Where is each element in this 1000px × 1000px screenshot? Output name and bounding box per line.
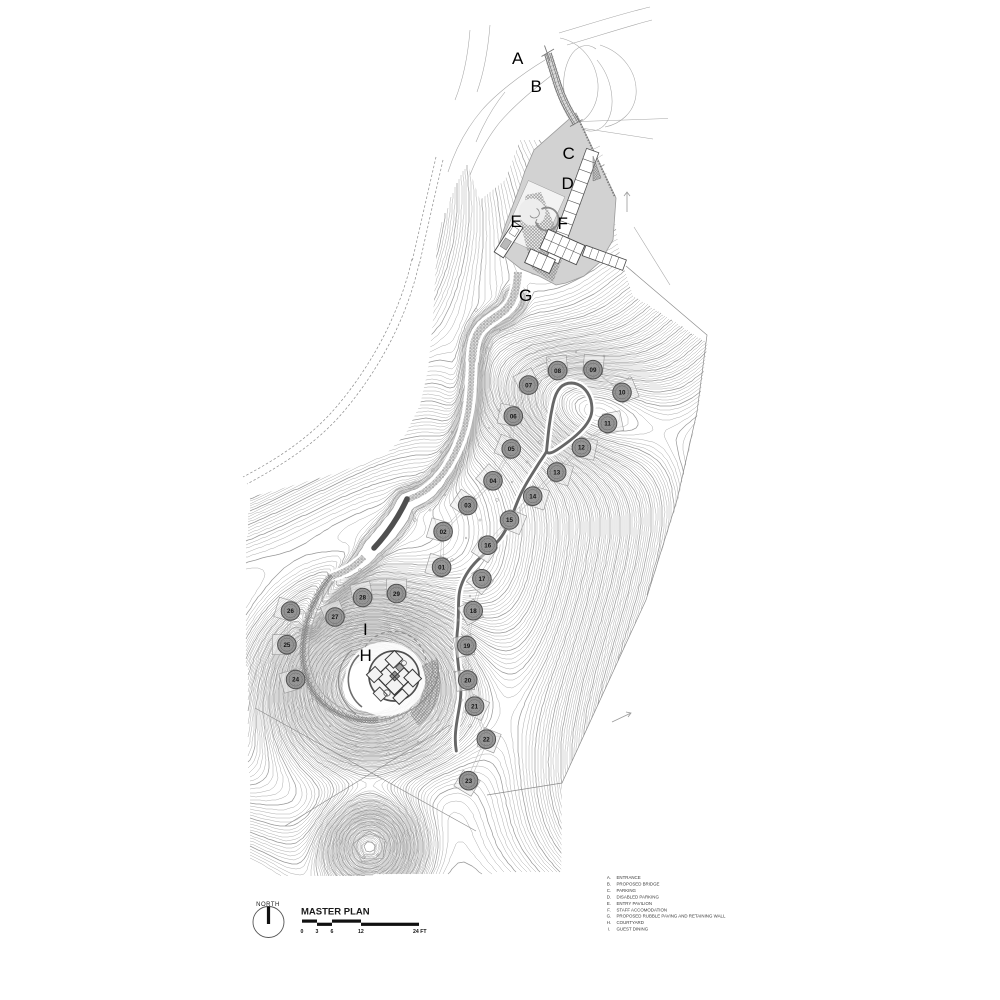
svg-text:07: 07: [525, 382, 532, 389]
svg-text:12: 12: [578, 445, 585, 452]
svg-text:DISABLED PARKING: DISABLED PARKING: [617, 895, 660, 900]
svg-text:ENTRANCE: ENTRANCE: [617, 875, 641, 880]
svg-text:PARKING: PARKING: [617, 888, 637, 893]
svg-text:PROPOSED BRIDGE: PROPOSED BRIDGE: [617, 882, 660, 887]
svg-text:G.: G.: [607, 914, 612, 919]
svg-text:20: 20: [464, 677, 471, 684]
svg-text:02: 02: [440, 529, 447, 536]
svg-text:B.: B.: [607, 882, 611, 887]
svg-text:6: 6: [331, 929, 334, 935]
svg-text:04: 04: [490, 478, 497, 485]
svg-text:19: 19: [463, 643, 470, 650]
svg-text:17: 17: [478, 576, 485, 583]
svg-text:A.: A.: [607, 875, 611, 880]
svg-text:08: 08: [554, 368, 561, 375]
svg-text:C.: C.: [607, 888, 611, 893]
svg-text:24 FT: 24 FT: [413, 929, 427, 935]
svg-text:18: 18: [470, 608, 477, 615]
svg-text:D: D: [562, 174, 574, 193]
svg-text:06: 06: [510, 413, 517, 420]
svg-text:24: 24: [292, 677, 299, 684]
svg-text:F: F: [558, 214, 568, 233]
svg-text:STAFF ACCOMODATION: STAFF ACCOMODATION: [617, 907, 668, 912]
svg-text:0: 0: [301, 929, 304, 935]
svg-text:I: I: [363, 620, 368, 639]
svg-text:I.: I.: [608, 927, 610, 932]
svg-text:15: 15: [506, 517, 513, 524]
svg-text:03: 03: [464, 503, 471, 510]
svg-text:COURTYARD: COURTYARD: [617, 920, 644, 925]
svg-text:H.: H.: [607, 920, 611, 925]
svg-text:26: 26: [287, 608, 294, 615]
svg-text:E: E: [511, 212, 522, 231]
svg-text:H: H: [360, 646, 372, 665]
svg-text:16: 16: [484, 542, 491, 549]
svg-text:B: B: [531, 77, 542, 96]
svg-text:22: 22: [483, 736, 490, 743]
svg-text:E.: E.: [607, 901, 611, 906]
svg-text:23: 23: [465, 778, 472, 785]
svg-text:ENTRY PAVILION: ENTRY PAVILION: [617, 901, 653, 906]
svg-text:C: C: [563, 144, 575, 163]
svg-text:21: 21: [471, 703, 478, 710]
svg-text:09: 09: [590, 367, 597, 374]
svg-text:13: 13: [553, 469, 560, 476]
svg-text:29: 29: [393, 591, 400, 598]
svg-text:01: 01: [438, 564, 445, 571]
svg-text:PROPOSED RUBBLE PAVING AND RET: PROPOSED RUBBLE PAVING AND RETAINING WAL…: [617, 914, 726, 919]
svg-text:3: 3: [316, 929, 319, 935]
svg-text:A: A: [512, 49, 524, 68]
svg-text:05: 05: [508, 446, 515, 453]
svg-text:12: 12: [358, 929, 364, 935]
svg-text:25: 25: [283, 642, 290, 649]
svg-text:G: G: [519, 286, 532, 305]
svg-text:14: 14: [529, 493, 536, 500]
svg-text:D.: D.: [607, 895, 611, 900]
svg-text:28: 28: [359, 595, 366, 602]
svg-text:F.: F.: [607, 907, 610, 912]
svg-text:11: 11: [604, 421, 611, 428]
svg-text:GUEST DINING: GUEST DINING: [617, 927, 649, 932]
svg-text:MASTER PLAN: MASTER PLAN: [301, 907, 370, 918]
svg-text:10: 10: [619, 390, 626, 397]
svg-text:27: 27: [332, 614, 339, 621]
